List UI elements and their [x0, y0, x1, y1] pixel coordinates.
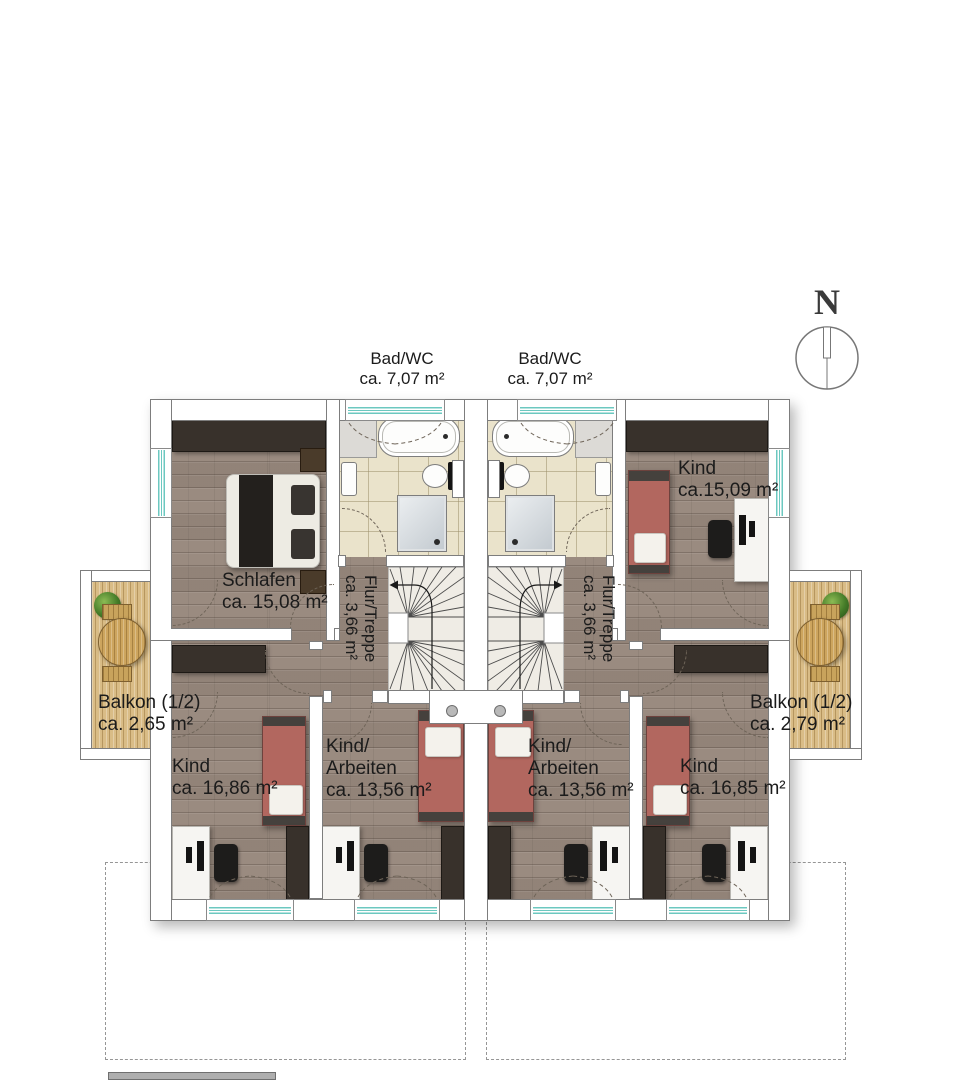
- window-swing-bath-right: [517, 421, 617, 447]
- wall-schlafen-bottom-b: [334, 628, 340, 641]
- bed-kind-top-right: [628, 470, 670, 574]
- room-area: ca. 13,56 m²: [528, 780, 634, 802]
- room-name: Balkon (1/2): [98, 692, 200, 714]
- landing-post-left: [446, 705, 458, 717]
- compass: N: [792, 282, 862, 400]
- room-name: Bad/WC: [347, 349, 457, 369]
- shower-right-drain: [512, 539, 518, 545]
- sideboard-kind-bottom-left: [172, 645, 266, 673]
- balcony-door-right-upper: [769, 578, 789, 630]
- balcony-right-table: [796, 618, 844, 666]
- window-bath-right-top: [517, 399, 617, 421]
- room-area: ca. 16,86 m²: [172, 778, 278, 800]
- label-kind-arbeiten-left: Kind/ Arbeiten ca. 13,56 m²: [326, 736, 432, 802]
- compass-needle: [824, 327, 831, 358]
- window-kindarb-right-bottom: [530, 899, 616, 921]
- room-area: ca. 13,56 m²: [326, 780, 432, 802]
- balcony-left-chair-bottom: [102, 666, 132, 682]
- toilet-right-bowl: [504, 464, 530, 488]
- wardrobe-kind-arbeiten-left: [441, 826, 464, 900]
- window-swing-kind-br: [666, 871, 750, 899]
- stair-landing: [429, 690, 523, 724]
- label-balkon-right: Balkon (1/2) ca. 2,79 m²: [750, 692, 852, 736]
- scale-bar: [108, 1072, 276, 1080]
- room-name: Flur/Treppe: [361, 575, 380, 725]
- label-kind-arbeiten-right: Kind/ Arbeiten ca. 13,56 m²: [528, 736, 634, 802]
- room-name-line2: Arbeiten: [528, 758, 634, 780]
- window-swing-kindarb-left: [354, 871, 440, 899]
- room-name: Balkon (1/2): [750, 692, 852, 714]
- balcony-right-chair-bottom: [810, 666, 840, 682]
- label-flur-treppe-right: Flur/Treppe ca. 3,66 m²: [580, 575, 618, 725]
- room-area: ca. 3,66 m²: [580, 575, 599, 725]
- room-area: ca. 7,07 m²: [495, 369, 605, 389]
- label-kind-bottom-left: Kind ca. 16,86 m²: [172, 756, 278, 800]
- wardrobe-kind-bottom-right: [643, 826, 666, 900]
- balcony-left-table: [98, 618, 146, 666]
- floor-plan-canvas: N: [0, 0, 964, 1080]
- wall-kindarb-right-top-b: [620, 690, 629, 703]
- room-area: ca. 2,65 m²: [98, 714, 200, 736]
- wardrobe-schlafen: [172, 416, 326, 452]
- north-label: N: [814, 282, 840, 322]
- room-name: Schlafen: [222, 570, 328, 592]
- window-bath-left-top: [345, 399, 445, 421]
- label-bad-wc-right: Bad/WC ca. 7,07 m²: [495, 349, 605, 389]
- wall-kind-bl-right-a: [309, 641, 323, 650]
- wall-party-center: [464, 399, 488, 921]
- toilet-left-bowl: [422, 464, 448, 488]
- wall-kind-br-left-a: [629, 641, 643, 650]
- room-name: Kind: [172, 756, 278, 778]
- shower-left-drain: [434, 539, 440, 545]
- label-flur-treppe-left: Flur/Treppe ca. 3,66 m²: [342, 575, 380, 725]
- wardrobe-kind-arbeiten-right: [488, 826, 511, 900]
- desk-kind-bottom-left: [172, 826, 210, 900]
- washbasin-right: [595, 462, 611, 496]
- room-name: Bad/WC: [495, 349, 605, 369]
- washbasin-left: [341, 462, 357, 496]
- double-bed-schlafen: [226, 474, 320, 568]
- room-name: Kind: [680, 756, 786, 778]
- room-area: ca. 15,08 m²: [222, 592, 328, 614]
- wall-kindarb-left-top-a: [323, 690, 332, 703]
- label-kind-top-right: Kind ca.15,09 m²: [678, 458, 778, 502]
- room-area: ca. 7,07 m²: [347, 369, 457, 389]
- window-swing-kindarb-right: [530, 871, 616, 899]
- wall-bath-left-bottom-b: [386, 555, 464, 567]
- room-name: Flur/Treppe: [599, 575, 618, 725]
- bathtub-right-drain: [504, 434, 509, 439]
- balcony-door-left-upper: [151, 578, 171, 630]
- room-area: ca. 2,79 m²: [750, 714, 852, 736]
- room-name: Kind: [678, 458, 778, 480]
- bath-right-wall-stub: [488, 460, 500, 498]
- wardrobe-kind-top-right: [626, 416, 768, 452]
- window-schlafen-left: [150, 448, 172, 518]
- wall-bath-left-bottom-a: [338, 555, 346, 567]
- window-kind-bl-bottom: [206, 899, 294, 921]
- room-name-line2: Arbeiten: [326, 758, 432, 780]
- label-kind-bottom-right: Kind ca. 16,85 m²: [680, 756, 786, 800]
- room-area: ca. 3,66 m²: [342, 575, 361, 725]
- wall-kindarb-right-top-a: [564, 690, 580, 703]
- bath-left-wall-stub: [452, 460, 464, 498]
- room-name-line1: Kind/: [528, 736, 634, 758]
- label-balkon-left: Balkon (1/2) ca. 2,65 m²: [98, 692, 200, 736]
- landing-post-right: [494, 705, 506, 717]
- stairs-left: [388, 567, 464, 691]
- wall-schlafen-bottom-a: [150, 628, 292, 641]
- bed-runner: [239, 475, 273, 567]
- nightstand-top: [300, 448, 326, 472]
- window-kindarb-left-bottom: [354, 899, 440, 921]
- sideboard-kind-bottom-right: [674, 645, 768, 673]
- desk-kind-top-right: [734, 498, 770, 582]
- window-swing-kind-bl: [206, 871, 294, 899]
- window-swing-bath-left: [345, 421, 445, 447]
- wall-kind-bl-right-b: [309, 696, 323, 899]
- bed-pillow-dark-2: [291, 529, 315, 559]
- label-schlafen: Schlafen ca. 15,08 m²: [222, 570, 328, 614]
- bed-pillow-dark-1: [291, 485, 315, 515]
- window-kind-br-bottom: [666, 899, 750, 921]
- wall-bath-right-bottom-a: [488, 555, 566, 567]
- stairs-right: [488, 567, 564, 691]
- label-bad-wc-left: Bad/WC ca. 7,07 m²: [347, 349, 457, 389]
- room-name-line1: Kind/: [326, 736, 432, 758]
- room-area: ca. 16,85 m²: [680, 778, 786, 800]
- room-area: ca.15,09 m²: [678, 480, 778, 502]
- wall-bath-right-bottom-b: [606, 555, 614, 567]
- chair-kind-top-right: [708, 520, 732, 558]
- balcony-left-wall-side: [80, 570, 92, 760]
